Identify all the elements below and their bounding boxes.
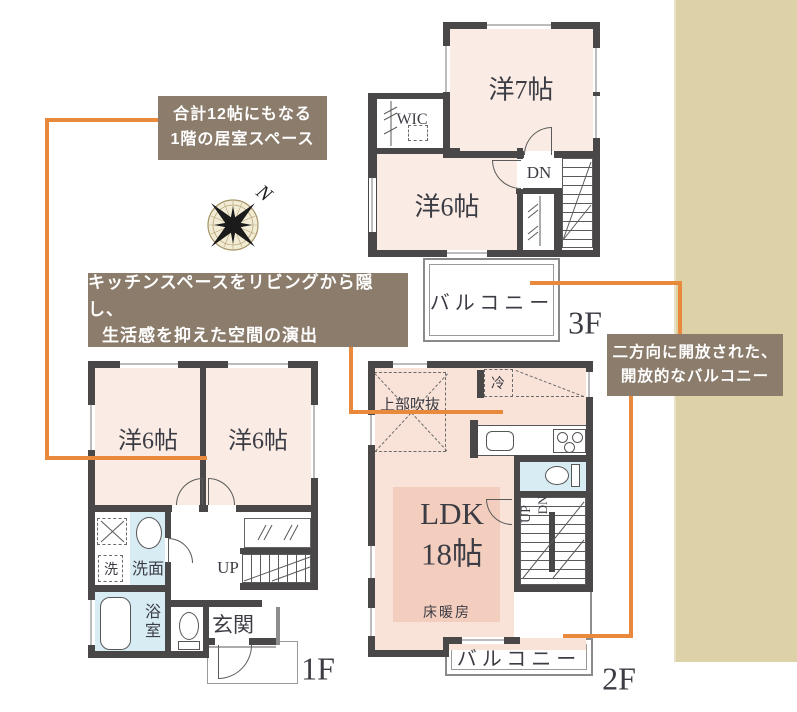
- note-kitchen-line2: 生活感を抑えた空間の演出: [88, 323, 318, 349]
- leader-1f-h-bottom: [45, 456, 207, 460]
- leader-kitchen-h: [349, 410, 503, 414]
- note-balcony-line2: 開放的なバルコニー: [621, 365, 769, 389]
- note-1f-rooms: 合計12帖にもなる 1階の居室スペース: [158, 96, 327, 160]
- note-balcony-line1: 二方向に開放された、: [612, 341, 777, 365]
- leader-1f-h-top: [47, 118, 160, 122]
- floorplan-page: { "theme":{ "accent":"#e8893c","stripe":…: [0, 0, 797, 712]
- note-1f-rooms-line1: 合計12帖にもなる: [173, 103, 312, 128]
- note-kitchen-line1: キッチンスペースをリビングから隠し、: [88, 270, 408, 323]
- leader-balcony3f-v: [678, 281, 682, 338]
- leader-kitchen-v: [349, 347, 353, 414]
- leader-balcony2f-h: [563, 634, 633, 638]
- note-1f-rooms-line2: 1階の居室スペース: [171, 128, 315, 153]
- leader-balcony3f-h: [530, 281, 682, 285]
- compass-north-label: N: [251, 180, 277, 207]
- leader-balcony2f-v: [629, 396, 633, 638]
- note-balcony: 二方向に開放された、 開放的なバルコニー: [607, 334, 783, 396]
- compass-rose: N: [198, 176, 278, 262]
- leader-1f-v: [45, 118, 49, 460]
- note-kitchen: キッチンスペースをリビングから隠し、 生活感を抑えた空間の演出: [88, 273, 408, 347]
